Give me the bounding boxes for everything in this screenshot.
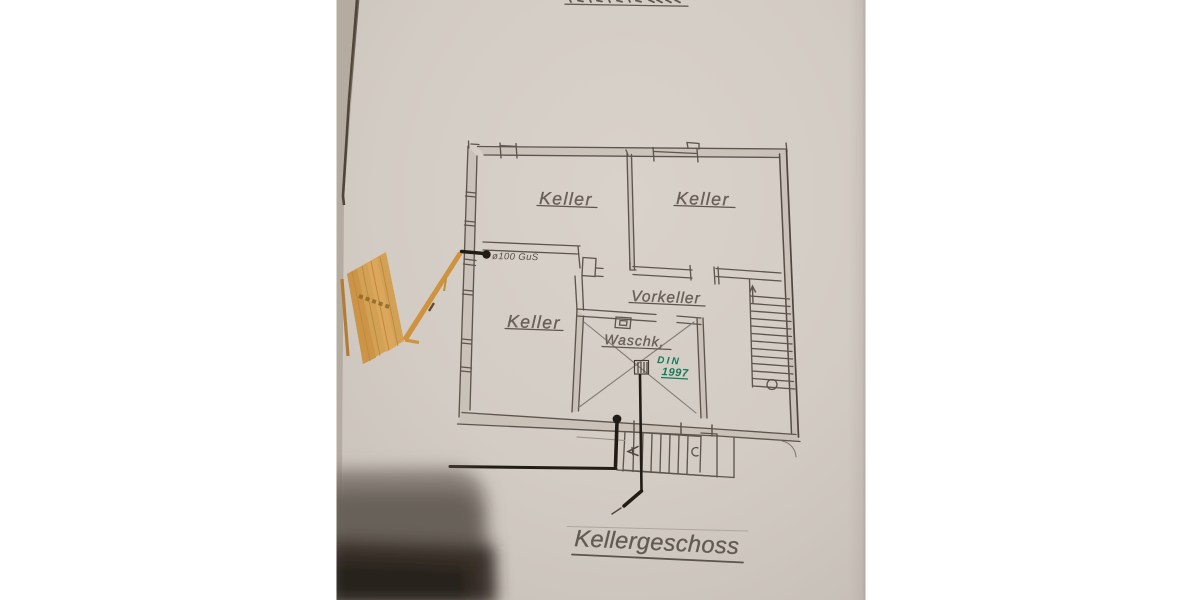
svg-text:Keller: Keller [676,188,730,209]
svg-text:Keller: Keller [507,311,561,333]
svg-text:Vorkeller: Vorkeller [631,288,701,307]
svg-text:ø100 GuS: ø100 GuS [492,251,539,263]
svg-text:Waschk,: Waschk, [604,331,665,350]
svg-text:Keller: Keller [539,188,593,209]
